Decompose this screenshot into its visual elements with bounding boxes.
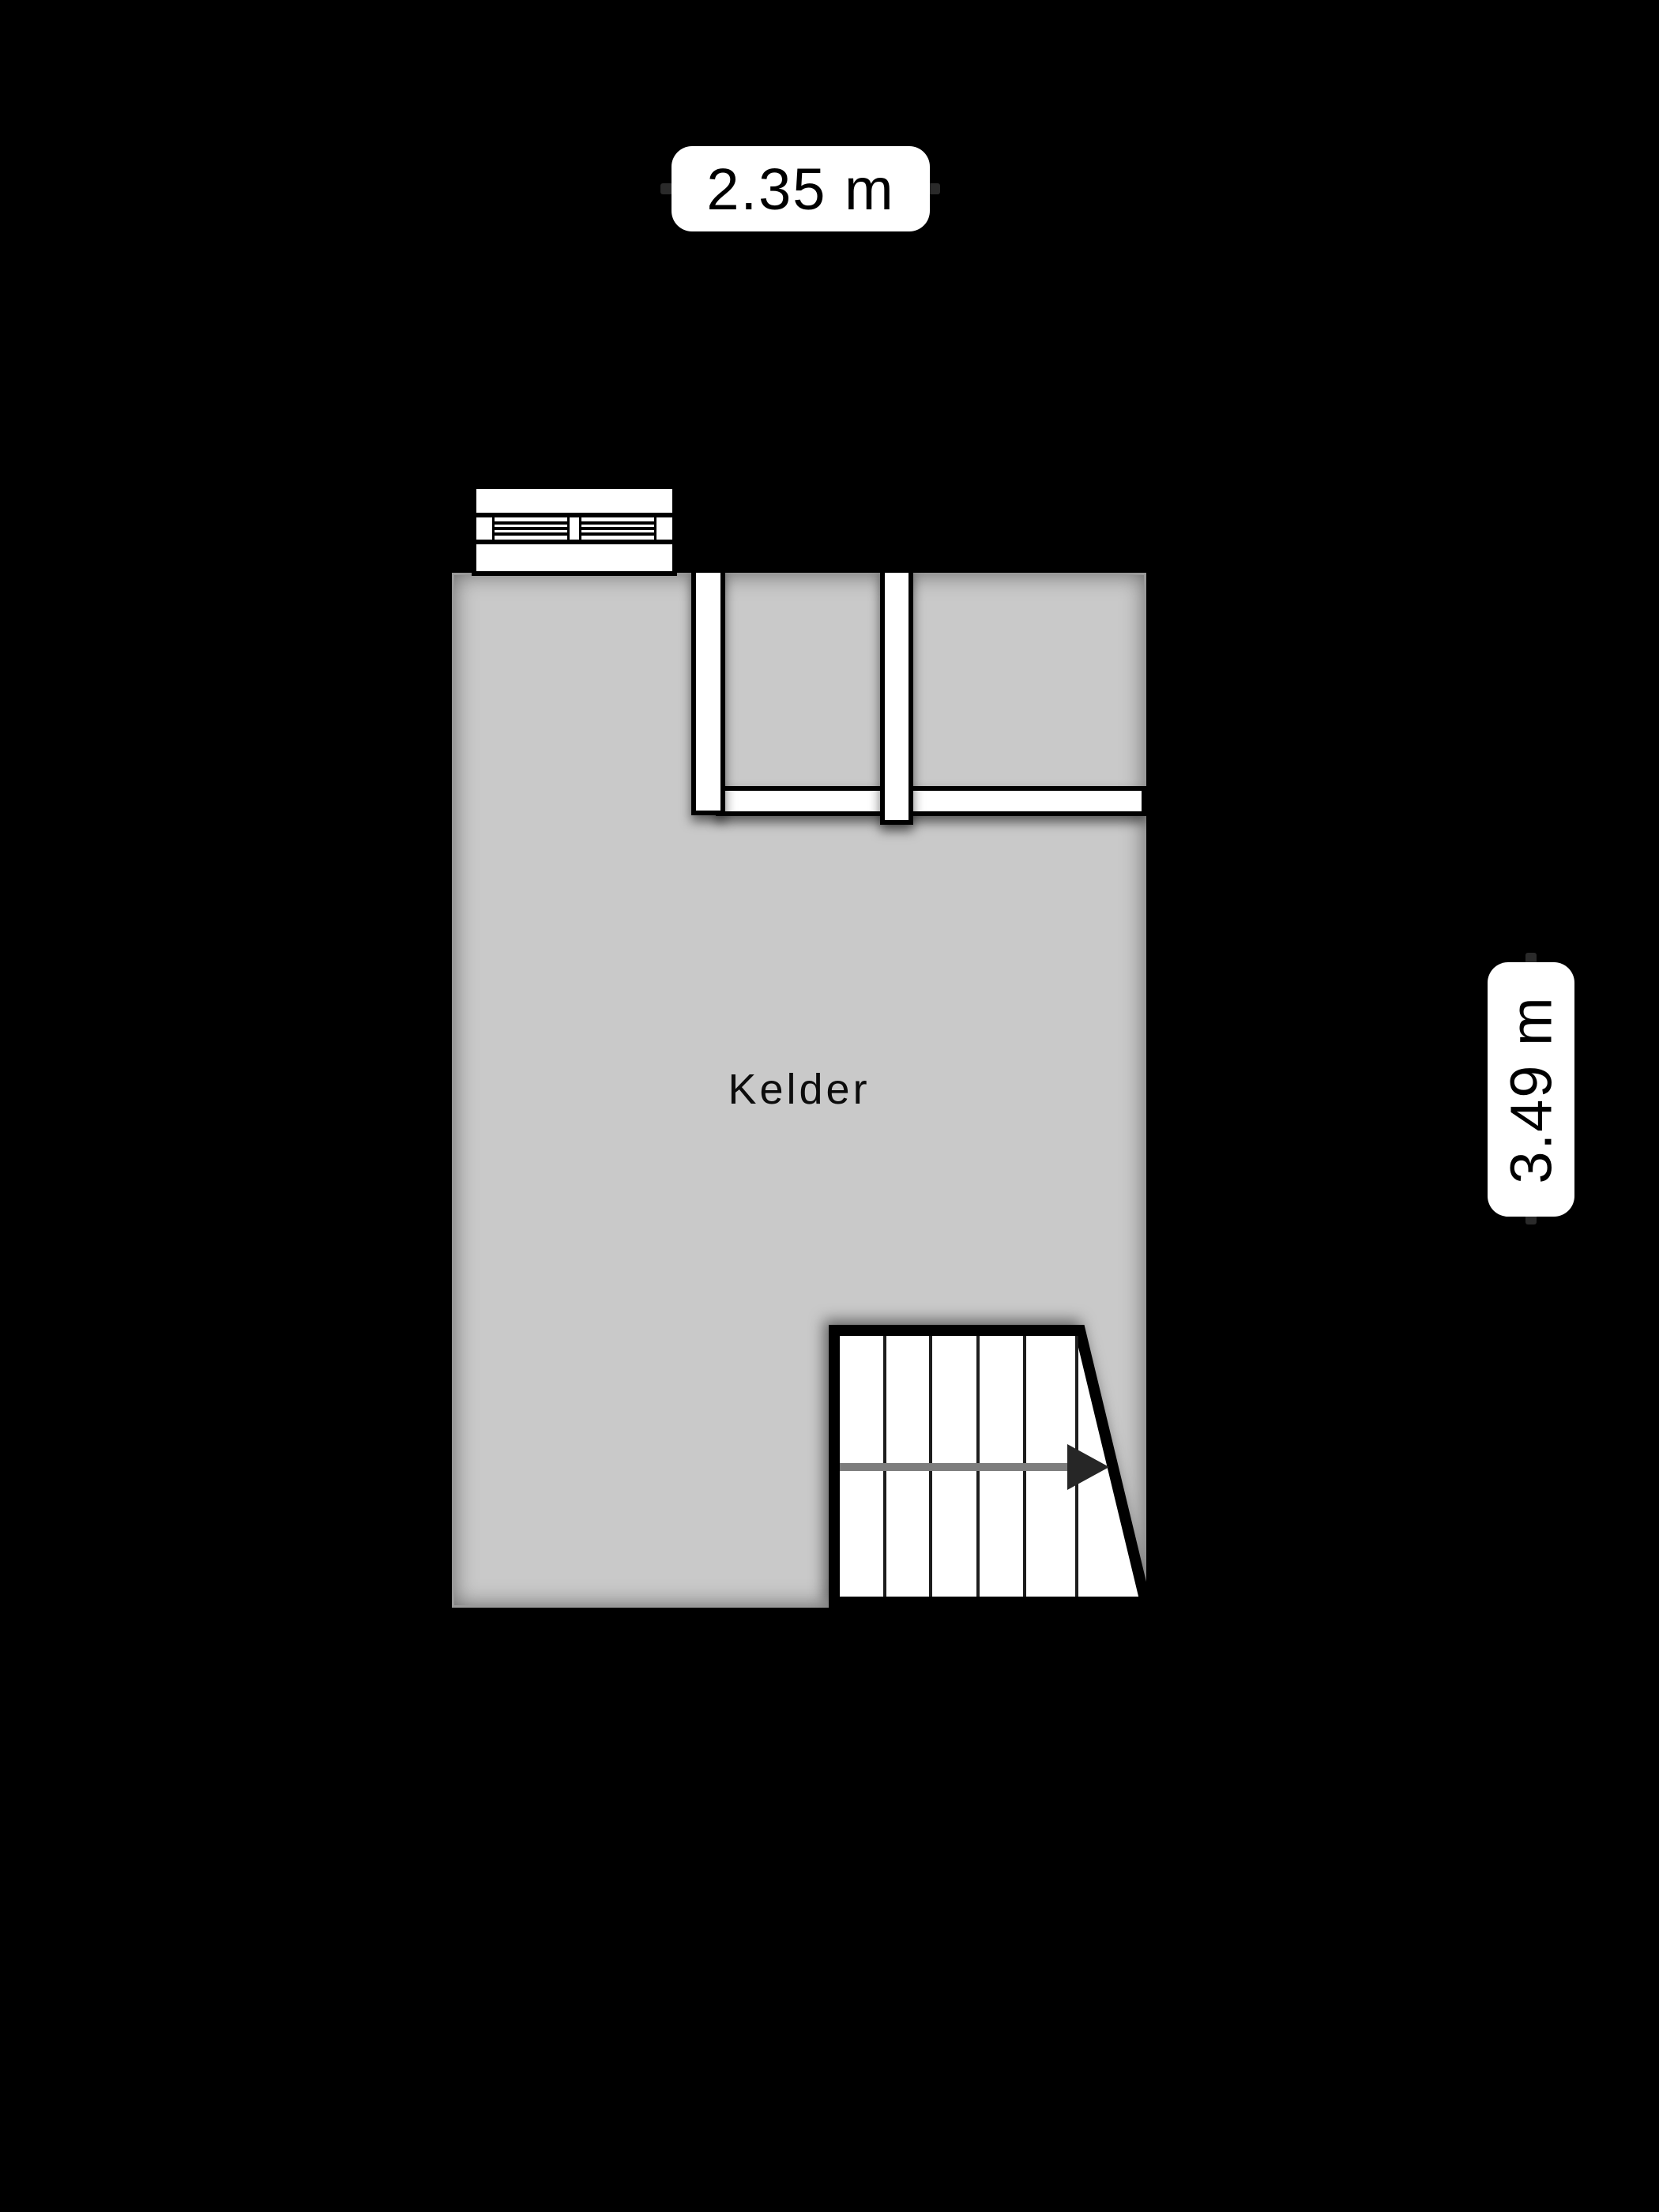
room-label: Kelder bbox=[452, 1065, 1146, 1114]
interior-wall-vertical-right bbox=[880, 568, 913, 825]
window-center-post bbox=[570, 517, 579, 540]
window-frame-block-left bbox=[476, 517, 492, 540]
window-outer-sill bbox=[476, 489, 672, 513]
dimension-width-text: 2.35 m bbox=[706, 156, 894, 223]
window-glazing-left bbox=[495, 517, 567, 540]
floorplan-canvas: 2.35 m 3.49 m bbox=[0, 0, 1659, 2212]
window-glazing-right bbox=[581, 517, 654, 540]
window-glazing-row bbox=[476, 517, 672, 540]
interior-wall-horizontal bbox=[716, 786, 1146, 816]
dimension-label-width: 2.35 m bbox=[671, 146, 930, 231]
window-frame-block-right bbox=[656, 517, 672, 540]
dimension-height-text: 3.49 m bbox=[1498, 995, 1565, 1183]
interior-wall-vertical-left bbox=[691, 568, 725, 815]
staircase bbox=[828, 1324, 1152, 1608]
dimension-label-height: 3.49 m bbox=[1488, 962, 1574, 1217]
window-symbol bbox=[472, 484, 677, 576]
window-inner-sill bbox=[476, 544, 672, 571]
